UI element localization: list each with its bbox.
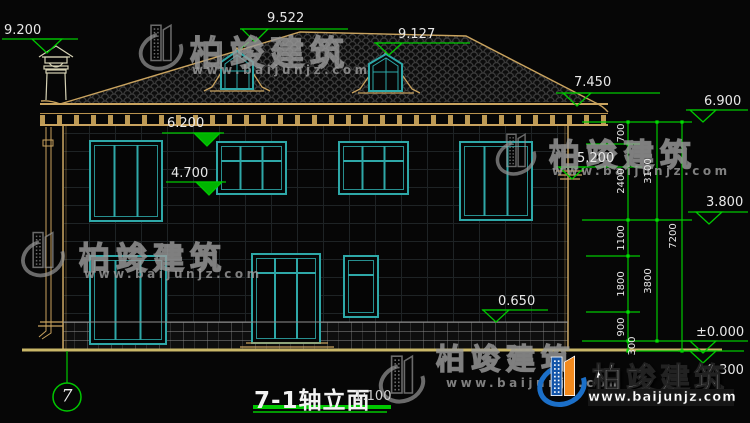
dim-3100: 3100 <box>644 158 654 183</box>
watermark-site-left: www.baijunjz.com <box>84 267 263 281</box>
elev-right-dormer: 9.127 <box>398 28 435 41</box>
dim-7200: 7200 <box>669 223 679 248</box>
brand-logo-icon <box>534 352 590 414</box>
watermark-logo-right <box>495 128 537 184</box>
elev-chimney-top: 9.200 <box>4 24 41 37</box>
watermark-site-top: www.baijunjz.com <box>192 63 371 77</box>
elev-second-floor: 3.800 <box>706 196 743 209</box>
dim-1800: 1800 <box>617 271 627 296</box>
dim-900: 900 <box>617 317 627 336</box>
watermark-site-right: www.baijunjz.com <box>552 164 731 178</box>
dim-300: 300 <box>628 336 638 355</box>
elev-base-top: 0.650 <box>498 295 535 308</box>
dim-2400: 2400 <box>617 168 627 193</box>
chimney <box>39 46 73 100</box>
elev-window-head: 6.200 <box>167 117 204 130</box>
dim-1100: 1100 <box>617 225 627 250</box>
cad-elevation-drawing: 9.200 9.522 9.127 7.450 6.900 6.200 5.20… <box>0 0 750 423</box>
elev-first-floor: ±0.000 <box>696 326 744 339</box>
elev-eave-board: 6.900 <box>704 95 741 108</box>
watermark-logo-top <box>138 18 184 80</box>
dim-3800: 3800 <box>644 268 654 293</box>
drawing-scale: 1:100 <box>354 389 391 404</box>
elev-left-dormer: 9.522 <box>267 12 304 25</box>
elev-corner-molding: 5.200 <box>577 152 614 165</box>
elev-window-sill: 4.700 <box>171 167 208 180</box>
watermark-logo-left <box>18 228 68 284</box>
dim-700: 700 <box>617 123 627 142</box>
elev-right-eave: 7.450 <box>574 76 611 89</box>
axis-number: 7 <box>62 387 73 407</box>
brand-logo-site: www.baijunjz.com <box>588 389 734 406</box>
